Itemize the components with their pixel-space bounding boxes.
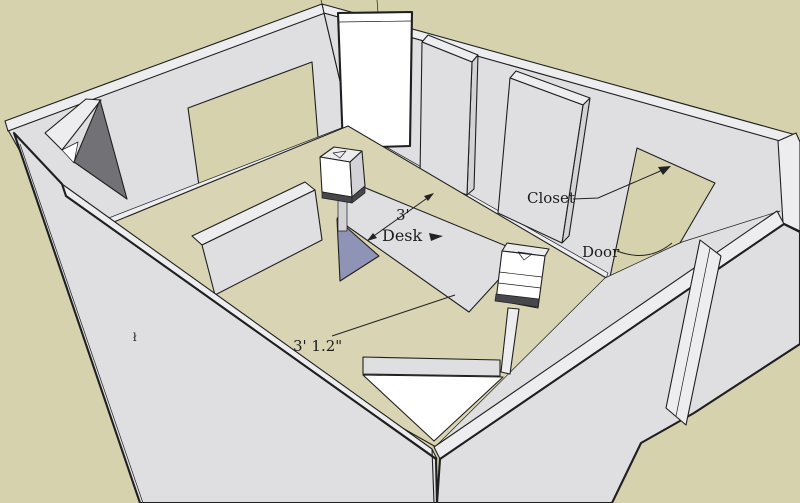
corner-table-back-rail <box>363 357 500 376</box>
left-speaker-stand <box>338 200 347 231</box>
acoustic-panel-1 <box>420 35 478 195</box>
wall-mark: ł <box>133 331 137 344</box>
desk-label: Desk <box>382 226 423 245</box>
floor-dimension-text: 3' 1.2" <box>293 337 342 355</box>
door-label: Door <box>582 243 620 261</box>
closet-label: Closet <box>527 189 575 207</box>
room-3d-view: 3' Desk Closet Door 3' 1.2" ł <box>0 0 800 503</box>
projection-screen <box>338 0 412 148</box>
panel-1-face <box>420 42 472 195</box>
sketchup-room-drawing: 3' Desk Closet Door 3' 1.2" ł <box>0 0 800 503</box>
left-speaker-front <box>320 157 352 197</box>
desk-width-text: 3' <box>396 206 410 224</box>
